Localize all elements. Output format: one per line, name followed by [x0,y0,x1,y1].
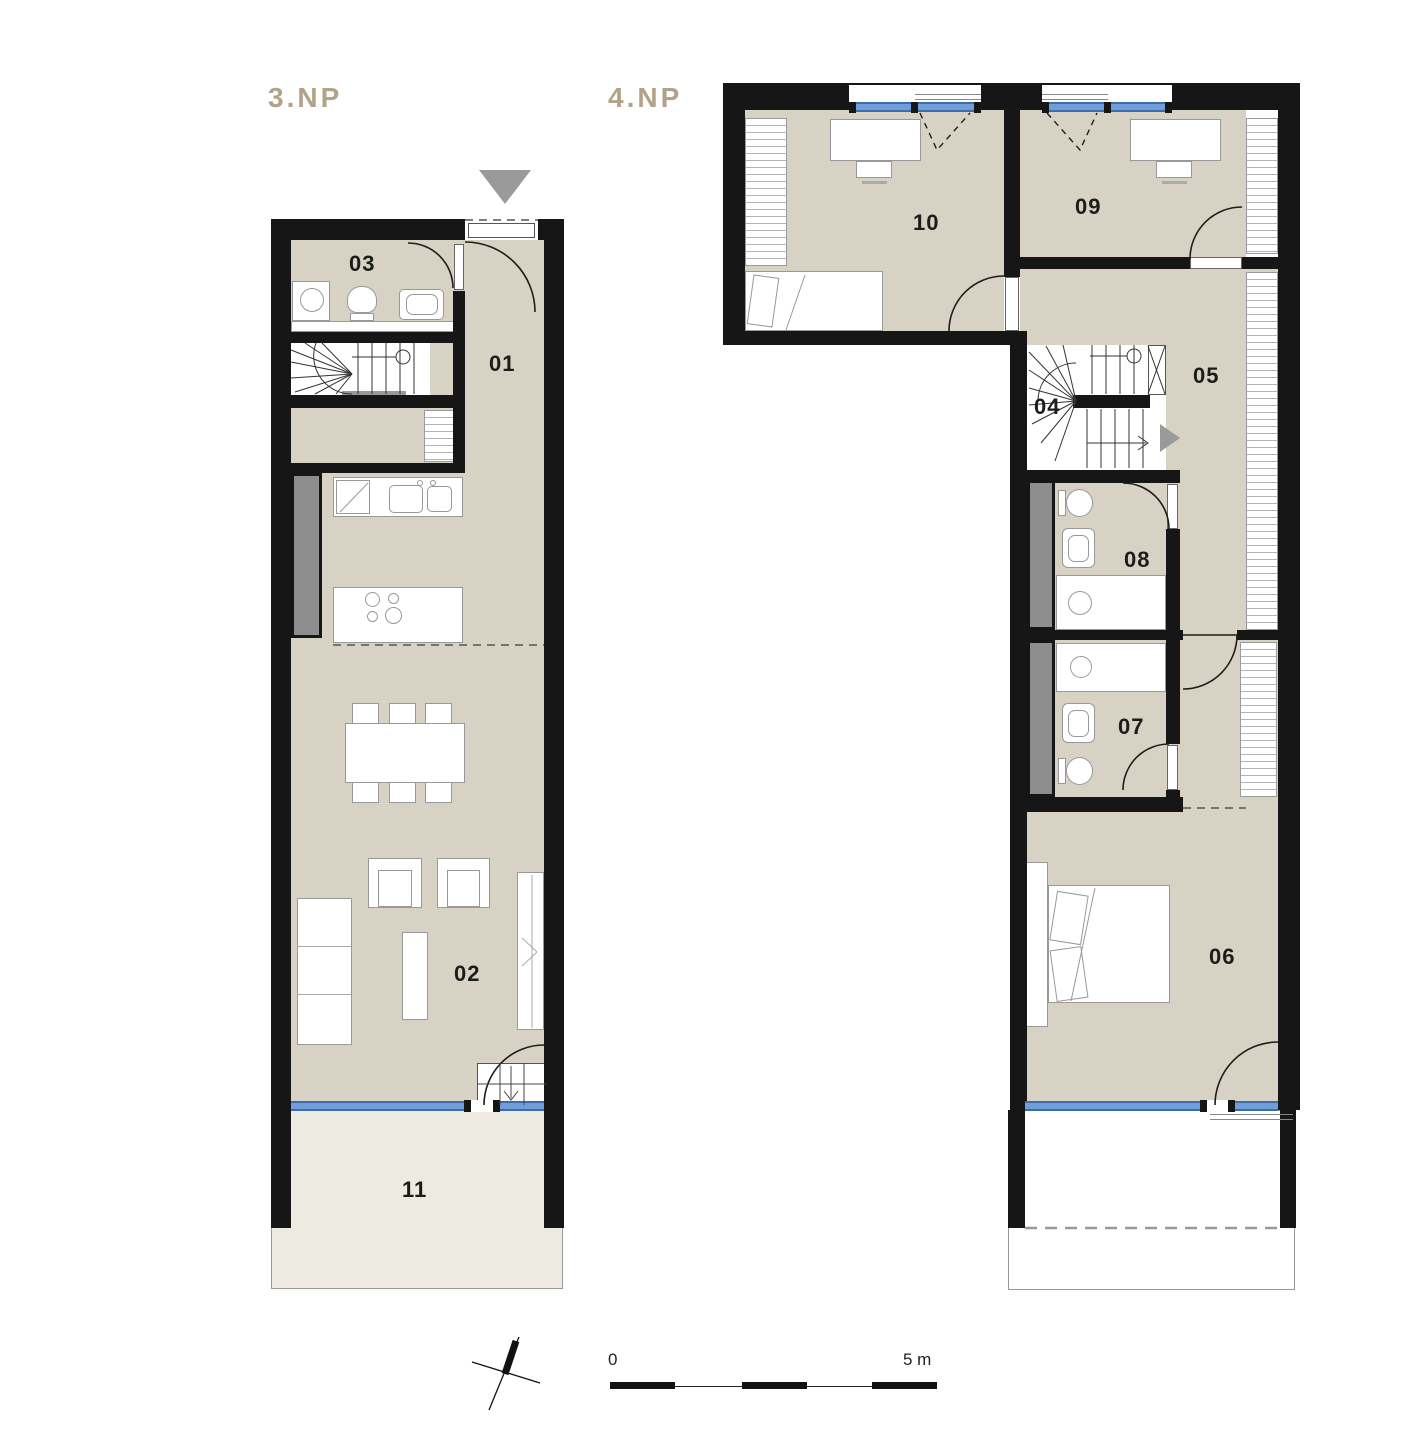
toilet-icon [1066,757,1093,785]
coffee-table [402,932,428,1020]
wall [723,331,1027,345]
door-jamb [464,1100,471,1112]
chair-icon [352,782,379,803]
window-jamb [1165,102,1172,113]
terrace-wall [271,1110,291,1228]
window-jamb [911,102,918,113]
toilet-icon [1066,489,1093,517]
wall [1010,470,1180,483]
monitor-icon [856,161,892,178]
window-railing [915,94,981,100]
toilet-tank [1058,758,1066,784]
tv-cabinet [517,872,544,1030]
wall [1010,797,1183,812]
north-arrow-icon [472,1337,540,1410]
bathroom7-door-leaf [1167,745,1178,790]
sink-basin [1068,535,1089,562]
dining-table [345,723,465,783]
wall [723,83,745,345]
dishwasher-icon [336,480,370,514]
balcony-wall [1280,1110,1296,1228]
wall [271,219,291,1110]
wall [1004,110,1020,277]
wall [453,291,465,473]
monitor-stand [862,181,887,184]
wall [1166,640,1180,744]
window-band [291,1101,544,1111]
corridor-wardrobe [1240,642,1277,797]
entry-doorstep [468,223,535,238]
terrace-wall [544,1110,564,1228]
balcony [1008,1110,1295,1290]
bathroom8-door-leaf [1167,484,1178,529]
window-railing [1042,94,1108,100]
shower-drain [1070,656,1092,678]
chair-icon [425,782,452,803]
wall [1020,257,1190,269]
chair-icon [389,782,416,803]
room-label-03: 03 [349,251,375,277]
burner-icon [385,607,402,624]
armchair-cushion [447,870,480,907]
window-jamb [1104,102,1111,113]
wall [1010,630,1183,640]
shower-drain [1068,591,1092,615]
wall [723,83,1300,110]
stair-frame [1148,345,1166,395]
floorplan-canvas: 3.NP 4.NP [0,0,1420,1442]
sofa-icon [297,898,352,1045]
room-label-06: 06 [1209,944,1235,970]
wall [1166,529,1180,630]
exterior-steps [477,1063,547,1105]
burner-icon [388,593,399,604]
desk-icon [830,119,921,161]
floor4-title: 4.NP [608,82,682,114]
washing-machine-drum [300,288,324,312]
shaft [1027,640,1055,797]
room-label-11: 11 [402,1177,427,1203]
burner-icon [367,611,378,622]
kitchen-sink-basin [389,485,423,513]
window-jamb [1042,102,1049,113]
stair-mid-wall [1073,395,1150,408]
room10-door-leaf [1005,277,1019,331]
wall [1237,630,1278,640]
scale-segment [610,1382,675,1389]
balcony-railing [1210,1114,1293,1120]
floor3-title: 3.NP [268,82,342,114]
room-label-08: 08 [1124,547,1150,573]
burner-icon [365,592,380,607]
entry-arrow-icon [479,170,531,204]
wardrobe-icon [745,118,787,266]
bathroom3-door-leaf [454,244,464,290]
sink-basin [406,294,438,315]
wall [1278,83,1300,1110]
sink-basin [1068,710,1089,737]
scale-zero-label: 0 [608,1350,617,1370]
window-jamb [849,102,856,113]
shaft [1027,478,1055,630]
door-jamb [493,1100,500,1112]
walk-direction-icon [1160,424,1180,452]
room-label-10: 10 [913,210,939,236]
armchair-cushion [378,870,412,907]
scale-segment [872,1382,937,1389]
terrace-door-threshold [470,1100,494,1112]
wall [1166,790,1180,797]
monitor-stand [1162,181,1187,184]
bedroom-door-threshold [1206,1100,1228,1112]
shaft [291,473,322,638]
wardrobe-icon [1246,118,1278,254]
room-label-05: 05 [1193,363,1219,389]
wall [544,219,564,1110]
scale-segment [742,1382,807,1389]
door-jamb [1200,1100,1207,1112]
balcony-wall [1008,1110,1025,1228]
room09-door-threshold [1190,257,1242,269]
room-label-01: 01 [489,351,515,377]
toilet-seat [350,313,374,321]
wall [291,463,463,473]
room-label-09: 09 [1075,194,1101,220]
wall [271,395,463,408]
chair-icon [352,703,379,724]
bathroom-counter [291,321,455,332]
room-label-07: 07 [1118,714,1144,740]
sofa-cushion-line [298,994,351,995]
scale-five-label: 5 m [903,1350,931,1370]
staircase-3np [291,343,430,395]
desk-icon [1130,119,1221,161]
wall [1010,345,1027,1110]
monitor-icon [1156,161,1192,178]
door-jamb [1228,1100,1235,1112]
corridor-wardrobe [1246,272,1278,630]
window-jamb [974,102,981,113]
chair-icon [425,703,452,724]
wall [271,332,463,343]
toilet-icon [347,286,377,313]
wall [1242,257,1300,269]
window-band [1025,1101,1278,1111]
chair-icon [389,703,416,724]
kitchen-sink-basin [427,486,452,512]
toilet-tank [1058,490,1066,516]
room-label-02: 02 [454,961,480,987]
room-label-04: 04 [1034,394,1060,420]
sofa-cushion-line [298,946,351,947]
